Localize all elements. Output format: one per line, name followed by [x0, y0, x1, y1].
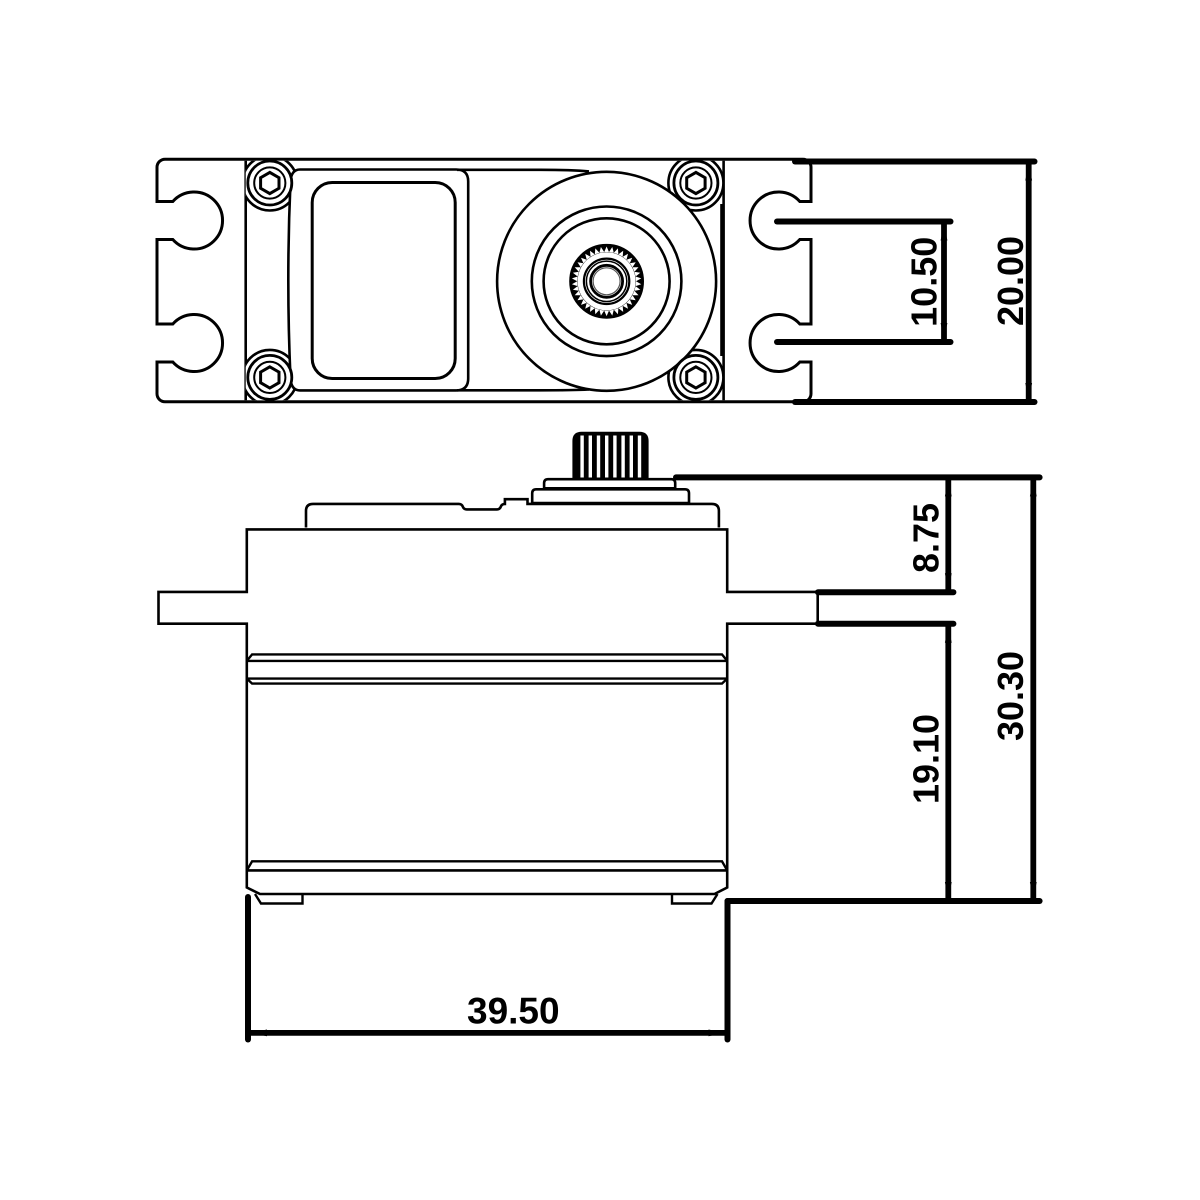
svg-text:8.75: 8.75 — [906, 503, 947, 573]
svg-text:19.10: 19.10 — [906, 714, 947, 804]
svg-text:20.00: 20.00 — [990, 236, 1031, 326]
svg-text:30.30: 30.30 — [990, 651, 1031, 741]
svg-text:39.50: 39.50 — [467, 990, 560, 1031]
svg-text:10.50: 10.50 — [904, 237, 945, 327]
